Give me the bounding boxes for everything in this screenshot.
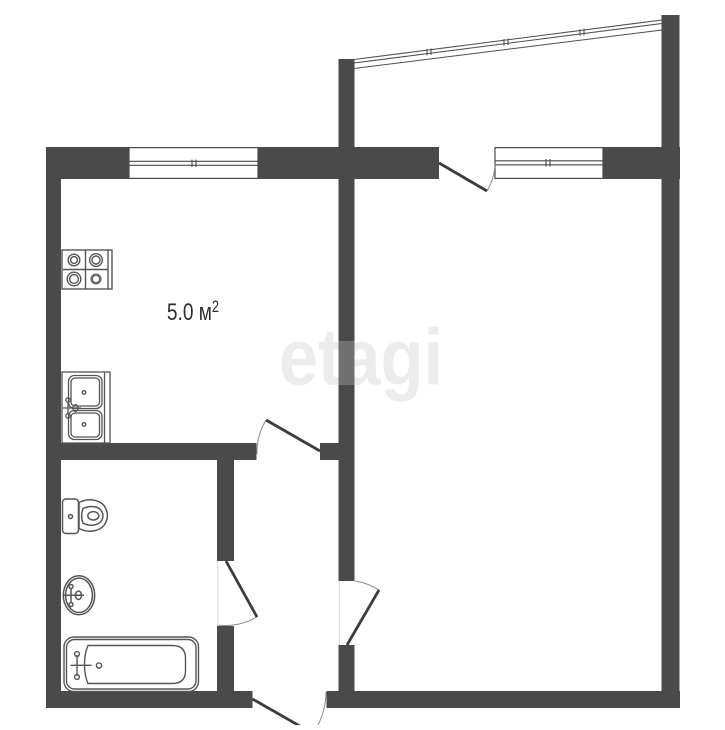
svg-text:5.0 м2: 5.0 м2 bbox=[167, 298, 219, 326]
